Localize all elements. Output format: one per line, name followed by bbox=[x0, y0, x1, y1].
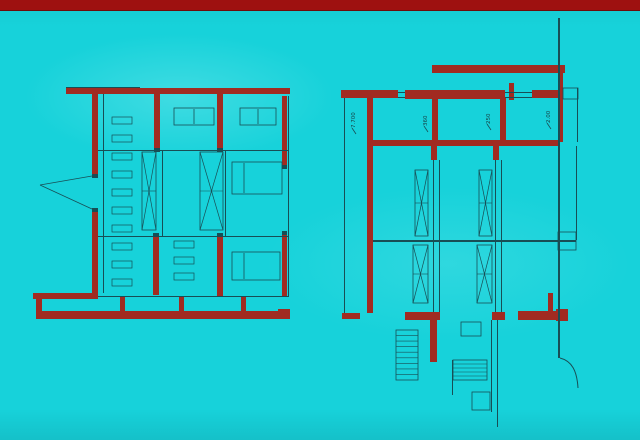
drawing-line bbox=[98, 296, 288, 297]
wall-segment bbox=[341, 90, 398, 98]
floor-plan-drawing: 7.7003602502.00 bbox=[0, 0, 640, 440]
drawing-line bbox=[491, 320, 492, 412]
wall-segment bbox=[493, 146, 499, 160]
wall-segment bbox=[278, 309, 290, 319]
wall-segment bbox=[36, 311, 288, 319]
drawing-line bbox=[576, 146, 577, 240]
blueprint-slide-photo: 7.7003602502.00 bbox=[0, 0, 640, 440]
drawing-line bbox=[497, 320, 498, 427]
drawing-line bbox=[505, 92, 532, 93]
wall-segment bbox=[367, 98, 373, 313]
drawing-line bbox=[154, 148, 160, 152]
drawing-line bbox=[225, 150, 226, 237]
shelf-rung bbox=[112, 117, 132, 124]
dimension-label: 7.700 bbox=[351, 112, 357, 128]
drawing-line bbox=[439, 160, 440, 312]
wall-segment bbox=[556, 309, 568, 321]
drawing-line bbox=[162, 150, 163, 237]
fixture-box bbox=[472, 392, 490, 410]
drawing-line bbox=[153, 233, 159, 237]
wall-segment bbox=[33, 293, 98, 299]
x-braced-box bbox=[477, 245, 492, 303]
x-braced-box bbox=[200, 152, 223, 230]
drawing-line bbox=[217, 148, 223, 152]
stair-run bbox=[453, 360, 487, 380]
shelf-rung bbox=[174, 241, 194, 248]
fixture-box bbox=[563, 88, 578, 99]
shelf-rung bbox=[112, 189, 132, 196]
wall-segment bbox=[370, 140, 558, 146]
drawing-line bbox=[92, 174, 98, 178]
drawing-line bbox=[558, 18, 560, 358]
stair-run bbox=[396, 330, 418, 380]
wall-segment bbox=[432, 98, 438, 140]
drawing-line bbox=[398, 92, 405, 93]
fixture-box bbox=[232, 162, 282, 194]
drawing-line bbox=[40, 185, 92, 209]
drawing-line bbox=[98, 150, 288, 151]
wall-segment bbox=[36, 299, 42, 313]
shelf-rung bbox=[112, 153, 132, 160]
shelf-rung bbox=[112, 243, 132, 250]
wall-segment bbox=[431, 146, 437, 160]
dimension-label: 360 bbox=[423, 115, 429, 126]
stair-outline bbox=[453, 360, 487, 380]
drawing-line bbox=[344, 98, 345, 313]
drawing-line bbox=[98, 236, 288, 237]
drawing-line bbox=[103, 94, 104, 293]
wall-segment bbox=[492, 312, 505, 320]
drawing-line bbox=[373, 240, 576, 242]
x-braced-box bbox=[415, 170, 428, 236]
wall-segment bbox=[282, 235, 287, 297]
dimension-label: 2.00 bbox=[546, 110, 552, 123]
wall-segment bbox=[282, 96, 287, 167]
stair-outline bbox=[396, 330, 418, 380]
drawing-line bbox=[217, 233, 223, 237]
wall-segment bbox=[405, 90, 505, 99]
x-braced-box bbox=[479, 170, 492, 236]
fixture-box bbox=[232, 252, 280, 280]
shelf-rung bbox=[112, 261, 132, 268]
wall-segment bbox=[179, 296, 184, 311]
shelf-rung bbox=[112, 135, 132, 142]
wall-segment bbox=[430, 318, 437, 362]
drawing-line bbox=[501, 160, 502, 312]
drawing-line bbox=[505, 97, 532, 98]
fixture-box bbox=[461, 322, 481, 336]
wall-segment bbox=[217, 237, 223, 297]
wall-segment bbox=[92, 210, 98, 295]
x-braced-box bbox=[413, 245, 428, 303]
wall-segment bbox=[154, 94, 160, 150]
wall-segment bbox=[66, 88, 290, 94]
drawing-line bbox=[288, 96, 289, 297]
wall-segment bbox=[500, 98, 506, 140]
shelf-rung bbox=[174, 257, 194, 264]
drawing-line bbox=[282, 165, 287, 169]
drawing-line bbox=[495, 160, 496, 312]
dimension-label: 250 bbox=[486, 113, 492, 124]
wall-segment bbox=[342, 313, 360, 319]
drawing-line bbox=[40, 176, 92, 185]
wall-segment bbox=[217, 94, 223, 150]
wall-segment bbox=[432, 65, 565, 73]
wall-segment bbox=[241, 296, 246, 311]
wall-segment bbox=[92, 94, 98, 176]
door-swing-arc bbox=[560, 358, 578, 388]
drawing-line bbox=[282, 231, 287, 235]
drawing-line bbox=[66, 87, 140, 88]
drawing-line bbox=[433, 160, 434, 312]
shelf-rung bbox=[174, 273, 194, 280]
drawing-line bbox=[398, 97, 405, 98]
x-braced-box bbox=[142, 152, 156, 230]
shelf-rung bbox=[112, 225, 132, 232]
left-floor-plan bbox=[33, 87, 290, 319]
shelf-rung bbox=[112, 171, 132, 178]
wall-segment bbox=[548, 293, 553, 311]
shelf-rung bbox=[112, 279, 132, 286]
wall-segment bbox=[153, 237, 159, 295]
drawing-line bbox=[92, 208, 98, 212]
shelf-rung bbox=[112, 207, 132, 214]
wall-segment bbox=[518, 311, 557, 320]
wall-segment bbox=[120, 296, 125, 311]
right-floor-plan: 7.7003602502.00 bbox=[341, 18, 578, 427]
wall-segment bbox=[532, 90, 562, 98]
